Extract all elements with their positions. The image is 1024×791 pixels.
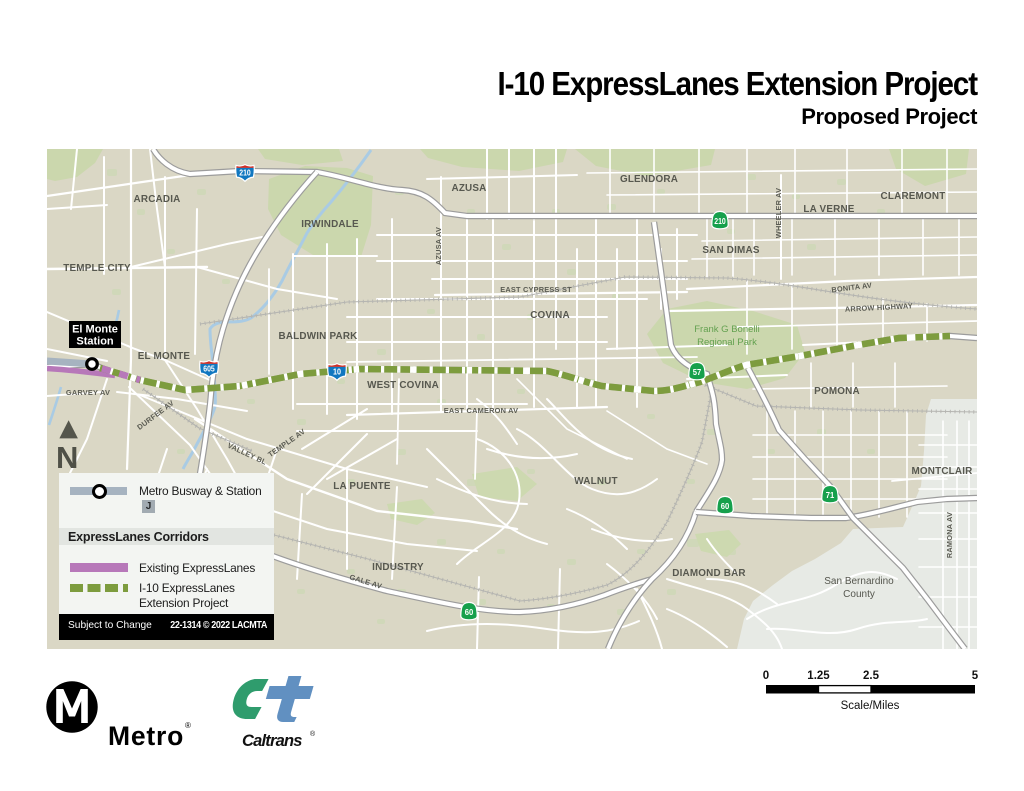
svg-text:San Bernardino: San Bernardino [824,576,894,587]
svg-text:CLAREMONT: CLAREMONT [881,191,946,202]
svg-text:AZUSA AV: AZUSA AV [434,227,443,265]
svg-text:®: ® [310,730,316,738]
svg-text:210: 210 [239,169,251,178]
svg-text:WHEELER AV: WHEELER AV [774,188,783,238]
svg-text:County: County [843,589,875,600]
svg-text:Station: Station [76,336,114,348]
svg-text:DIAMOND BAR: DIAMOND BAR [672,568,746,579]
svg-text:GARVEY AV: GARVEY AV [66,388,110,397]
svg-text:BALDWIN PARK: BALDWIN PARK [278,331,358,342]
svg-text:RAMONA AV: RAMONA AV [945,512,954,558]
svg-text:®: ® [185,721,191,730]
svg-text:Frank G Bonelli: Frank G Bonelli [694,324,759,335]
svg-text:2.5: 2.5 [863,670,880,682]
svg-text:LA PUENTE: LA PUENTE [333,481,391,492]
svg-text:COVINA: COVINA [530,310,570,321]
svg-text:Scale/Miles: Scale/Miles [841,700,900,712]
svg-text:WEST COVINA: WEST COVINA [367,380,439,391]
svg-text:0: 0 [763,670,769,682]
svg-text:EAST CAMERON AV: EAST CAMERON AV [444,406,518,415]
svg-text:EAST CYPRESS ST: EAST CYPRESS ST [500,285,572,294]
svg-text:57: 57 [693,368,702,377]
svg-text:MONTCLAIR: MONTCLAIR [911,466,972,477]
svg-text:Metro: Metro [108,721,184,751]
svg-text:POMONA: POMONA [814,386,860,397]
svg-text:SAN DIMAS: SAN DIMAS [702,245,759,256]
svg-text:1.25: 1.25 [807,670,830,682]
svg-text:GLENDORA: GLENDORA [620,174,678,185]
svg-text:N: N [56,440,78,475]
svg-text:71: 71 [826,491,835,500]
svg-text:60: 60 [465,608,474,617]
svg-text:5: 5 [972,670,979,682]
svg-text:60: 60 [721,502,730,511]
svg-text:IRWINDALE: IRWINDALE [301,219,359,230]
svg-text:AZUSA: AZUSA [451,183,486,194]
svg-text:Regional Park: Regional Park [697,337,757,348]
svg-text:WALNUT: WALNUT [574,476,617,487]
svg-text:INDUSTRY: INDUSTRY [372,562,424,573]
svg-text:Caltrans: Caltrans [242,732,302,750]
svg-text:ARCADIA: ARCADIA [134,194,181,205]
svg-text:605: 605 [203,365,215,374]
svg-text:TEMPLE CITY: TEMPLE CITY [63,263,131,274]
svg-text:210: 210 [714,217,726,226]
svg-text:El Monte: El Monte [72,324,118,336]
svg-text:EL MONTE: EL MONTE [138,351,191,362]
svg-text:10: 10 [333,368,342,377]
svg-text:LA VERNE: LA VERNE [803,204,854,215]
